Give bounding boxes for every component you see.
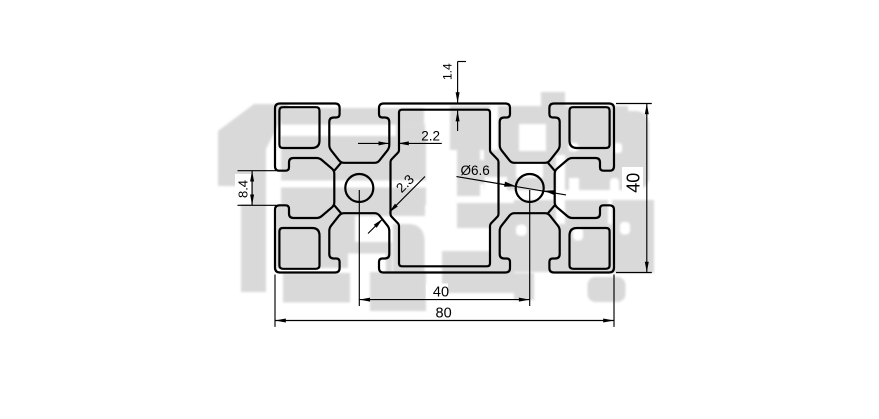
- svg-text:40: 40: [624, 173, 644, 193]
- svg-text:80: 80: [436, 305, 452, 321]
- svg-text:40: 40: [433, 284, 449, 300]
- svg-text:Ø6.6: Ø6.6: [461, 163, 490, 178]
- svg-text:2.2: 2.2: [421, 128, 440, 143]
- svg-text:1.4: 1.4: [440, 63, 454, 80]
- svg-text:8.4: 8.4: [235, 180, 250, 198]
